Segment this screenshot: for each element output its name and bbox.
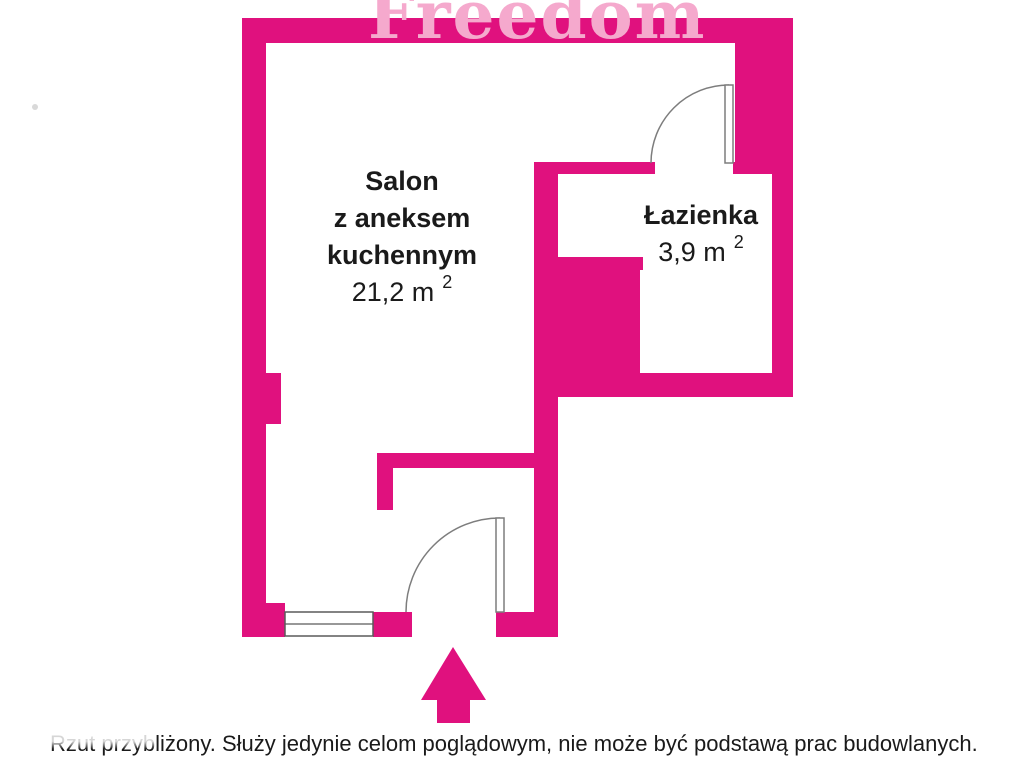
wall-bathroom-top-right-stub (733, 162, 772, 174)
room-name-line: z aneksem (327, 200, 477, 237)
wall-bathroom-bottom (534, 373, 793, 397)
room-label-bathroom: Łazienka 3,9 m2 (644, 197, 758, 274)
entrance-door-arc (406, 518, 500, 612)
wall-interior-horizontal (377, 453, 534, 468)
wall-bathroom-top-left (534, 162, 655, 174)
room-label-salon: Salon z aneksem kuchennym 21,2 m2 (327, 163, 477, 314)
wall-niche-bottom-bar (558, 257, 643, 270)
bathroom-door-arc (651, 85, 729, 163)
room-name-line: kuchennym (327, 237, 477, 274)
room-area-superscript: 2 (442, 264, 452, 301)
disclaimer-text: Rzut przybliżony. Służy jedynie celom po… (50, 731, 978, 757)
wall-bathroom-right (772, 174, 793, 397)
artifact-dot (32, 104, 38, 110)
floorplan-page: Freedom Salon (0, 0, 1024, 768)
wall-salon-right-column (534, 162, 558, 637)
wall-left-pier (266, 373, 281, 424)
entrance-arrow-icon (421, 647, 486, 723)
floorplan-canvas (0, 0, 1024, 768)
disclaimer-visible-part: liżony. Służy jedynie celom poglądowym, … (155, 731, 978, 756)
room-name-line: Salon (327, 163, 477, 200)
entrance-door-leaf (496, 518, 504, 612)
room-area-value: 3,9 m (658, 237, 726, 267)
wall-left (242, 18, 266, 637)
wall-bottom-left-corner (242, 603, 285, 637)
wall-right-upper (735, 18, 793, 174)
room-area-superscript: 2 (734, 224, 744, 261)
room-area: 21,2 m2 (327, 274, 477, 314)
room-area: 3,9 m2 (644, 234, 758, 274)
wall-interior-vertical (377, 453, 393, 510)
disclaimer-obscured-part: Rzut przyb (50, 731, 155, 756)
bathroom-door-leaf (725, 85, 733, 163)
room-area-value: 21,2 m (352, 277, 435, 307)
wall-bottom-mid-segment (373, 612, 412, 637)
brand-watermark: Freedom (368, 0, 706, 54)
